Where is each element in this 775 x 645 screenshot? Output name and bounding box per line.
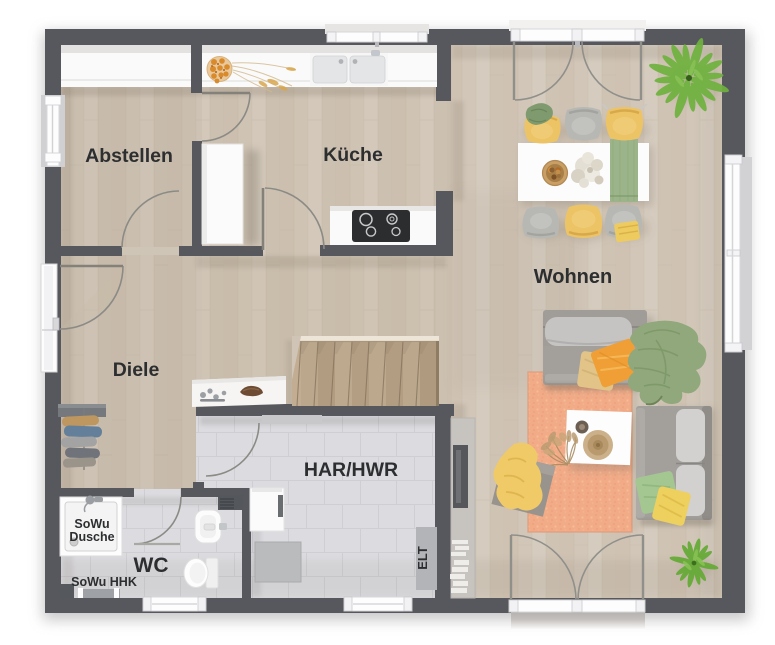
svg-text:Diele: Diele xyxy=(113,359,160,381)
svg-text:Wohnen: Wohnen xyxy=(534,266,613,288)
svg-text:HAR/HWR: HAR/HWR xyxy=(304,459,398,481)
svg-text:ELT: ELT xyxy=(415,546,430,570)
svg-text:Dusche: Dusche xyxy=(69,530,114,544)
svg-text:SoWu: SoWu xyxy=(74,517,109,531)
svg-text:WC: WC xyxy=(134,554,169,577)
svg-text:Abstellen: Abstellen xyxy=(85,145,173,167)
svg-text:Küche: Küche xyxy=(323,144,383,166)
svg-text:SoWu HHK: SoWu HHK xyxy=(71,575,137,589)
